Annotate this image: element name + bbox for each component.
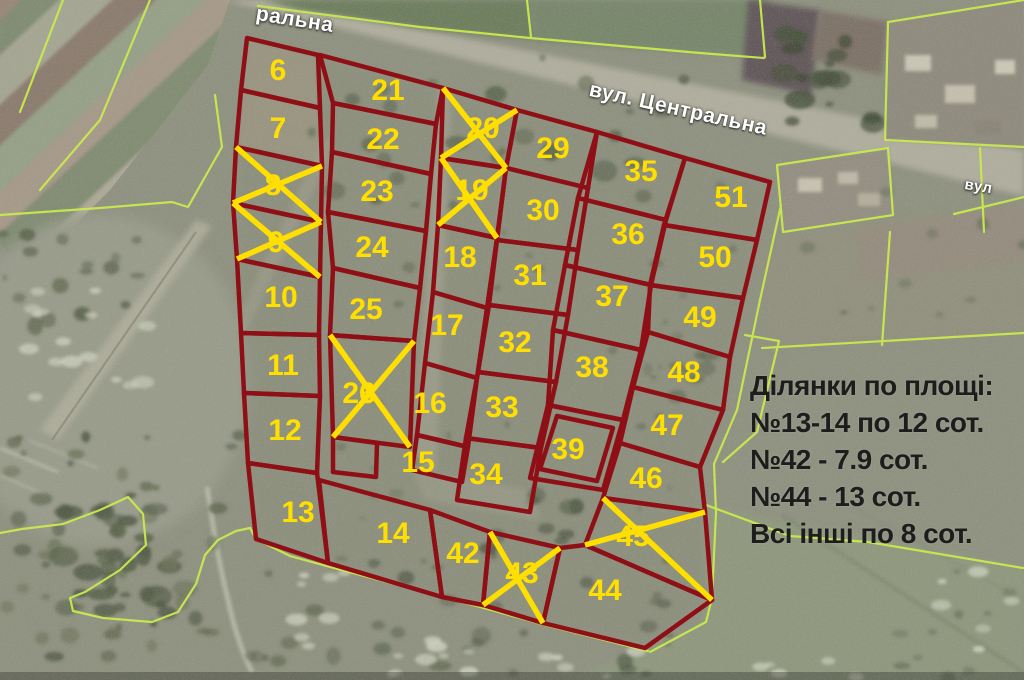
map-image: 6789101112132122232425261420191817161542… [0,0,1024,680]
parcel-number-34: 34 [469,458,503,491]
parcel-number-15: 15 [401,446,434,479]
parcel-number-10: 10 [264,281,297,314]
parcel-number-6: 6 [270,54,287,87]
parcel-number-17: 17 [430,309,463,342]
parcel-number-21: 21 [371,74,404,107]
parcel-number-36: 36 [611,218,644,251]
parcel-number-14: 14 [376,517,410,550]
parcel-number-7: 7 [270,112,287,145]
parcel-number-44: 44 [588,574,622,607]
parcel-number-38: 38 [575,351,608,384]
parcel-number-33: 33 [485,391,518,424]
parcel-number-11: 11 [267,349,299,382]
parcel-number-46: 46 [629,462,662,495]
parcel-number-18: 18 [443,241,476,274]
parcel-number-49: 49 [683,301,716,334]
parcel-number-50: 50 [698,241,731,274]
parcel-number-35: 35 [624,155,657,188]
parcel-number-47: 47 [650,409,683,442]
parcel-number-24: 24 [355,231,389,264]
parcel-number-37: 37 [595,280,628,313]
parcel-number-23: 23 [360,175,393,208]
parcel-number-48: 48 [667,356,700,389]
parcel-number-16: 16 [413,387,446,420]
parcel-number-13: 13 [281,496,314,529]
parcel-number-42: 42 [446,537,479,570]
parcel-number-25: 25 [349,293,382,326]
parcel-number-39: 39 [551,433,584,466]
satellite-parcel-map: 6789101112132122232425261420191817161542… [0,0,1024,680]
parcel-number-31: 31 [513,259,546,292]
parcel-number-22: 22 [366,123,399,156]
parcel-number-30: 30 [526,194,559,227]
parcel-number-32: 32 [498,326,531,359]
parcel-number-51: 51 [714,181,747,214]
parcel-number-29: 29 [536,132,569,165]
parcel-number-12: 12 [268,414,301,447]
